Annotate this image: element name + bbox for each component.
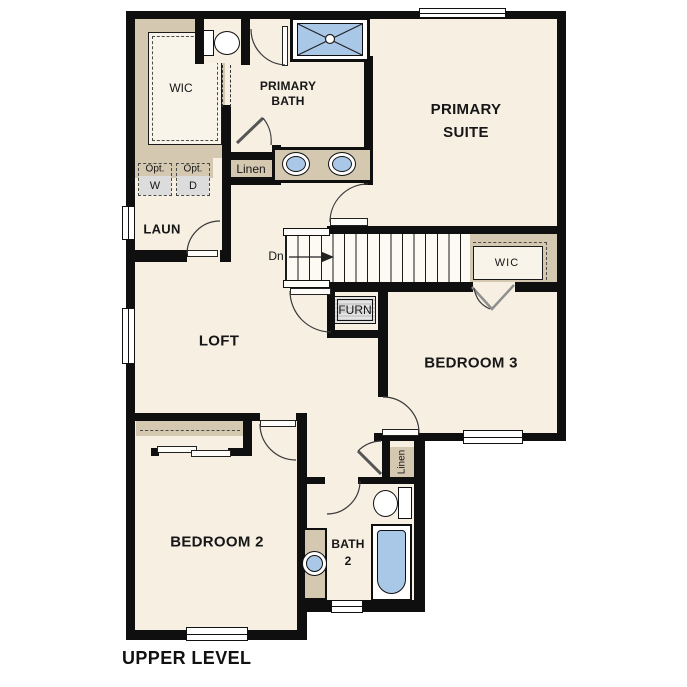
sink-basin <box>286 156 306 172</box>
sink-basin <box>306 555 323 572</box>
window <box>463 430 523 444</box>
washer-opt-label: Opt. <box>146 164 165 175</box>
staircase-treads <box>285 234 470 282</box>
floor-plan: FURN WIC <box>0 0 687 687</box>
room-label-line: PRIMARY <box>431 98 502 121</box>
room-label-primary-bath: PRIMARY BATH <box>260 79 316 109</box>
wall <box>327 282 473 292</box>
furnace: FURN <box>334 296 376 324</box>
wall <box>297 477 325 484</box>
door-leaf <box>330 218 368 226</box>
door-leaf <box>282 26 288 66</box>
room-label-line: BATH <box>331 536 364 553</box>
wall <box>222 105 231 158</box>
window <box>419 8 506 18</box>
door-leaf <box>290 288 331 295</box>
toilet-bowl <box>214 31 240 55</box>
window <box>122 206 135 240</box>
room-label-primary-suite: PRIMARY SUITE <box>431 98 502 144</box>
pocket-door-dashes <box>222 65 231 107</box>
sink-basin <box>332 156 352 172</box>
dryer-opt-label: Opt. <box>184 164 203 175</box>
window <box>122 308 135 364</box>
wall <box>378 282 388 397</box>
room-label-laundry: LAUN <box>143 222 180 237</box>
toilet-tank <box>398 487 412 519</box>
shower-pan <box>297 23 363 56</box>
room-label-line: 2 <box>331 553 364 570</box>
dryer-letter: D <box>189 180 197 192</box>
door-leaf <box>187 250 218 257</box>
wall <box>327 226 566 234</box>
wall <box>222 158 231 262</box>
wall <box>358 477 425 484</box>
room-label-line: BATH <box>260 94 316 109</box>
bathtub-basin <box>377 530 406 594</box>
room-label-bath2: BATH 2 <box>331 536 364 570</box>
wall <box>414 433 425 612</box>
window <box>331 600 363 613</box>
wall <box>241 19 250 65</box>
wall <box>126 250 187 262</box>
wall <box>296 413 307 421</box>
room-label-wic-primary: WIC <box>169 81 192 95</box>
closet-label-linen-bath2: Linen <box>397 450 408 474</box>
room-label-loft: LOFT <box>199 333 239 350</box>
wall <box>515 282 566 292</box>
wall <box>220 250 231 262</box>
furnace-label: FURN <box>338 303 371 317</box>
exterior-area <box>425 441 687 687</box>
stair-landing-rail <box>283 280 330 288</box>
wall <box>126 413 260 421</box>
page-title: UPPER LEVEL <box>122 648 251 669</box>
bedroom2-closet-shelf <box>136 421 244 436</box>
window <box>186 627 248 641</box>
toilet-bowl <box>373 490 398 517</box>
bedroom2-closet-rod-dashes <box>140 430 240 431</box>
door-leaf <box>382 429 419 436</box>
room-label-line: PRIMARY <box>260 79 316 94</box>
wall <box>243 420 252 456</box>
exterior-area <box>307 612 425 687</box>
toilet-tank <box>203 30 214 56</box>
stairs-direction-label: Dn <box>268 249 283 263</box>
closet-label-linen-hall: Linen <box>236 162 265 176</box>
wall <box>297 413 307 640</box>
room-label-wic-bedroom3: WIC <box>495 257 519 269</box>
room-label-bedroom3: BEDROOM 3 <box>424 355 518 372</box>
stair-landing-rail <box>283 228 330 236</box>
room-label-line: SUITE <box>431 121 502 144</box>
closet-sliding-door <box>191 450 231 457</box>
door-leaf <box>260 420 296 427</box>
washer-letter: W <box>150 180 160 192</box>
room-label-bedroom2: BEDROOM 2 <box>170 534 264 551</box>
